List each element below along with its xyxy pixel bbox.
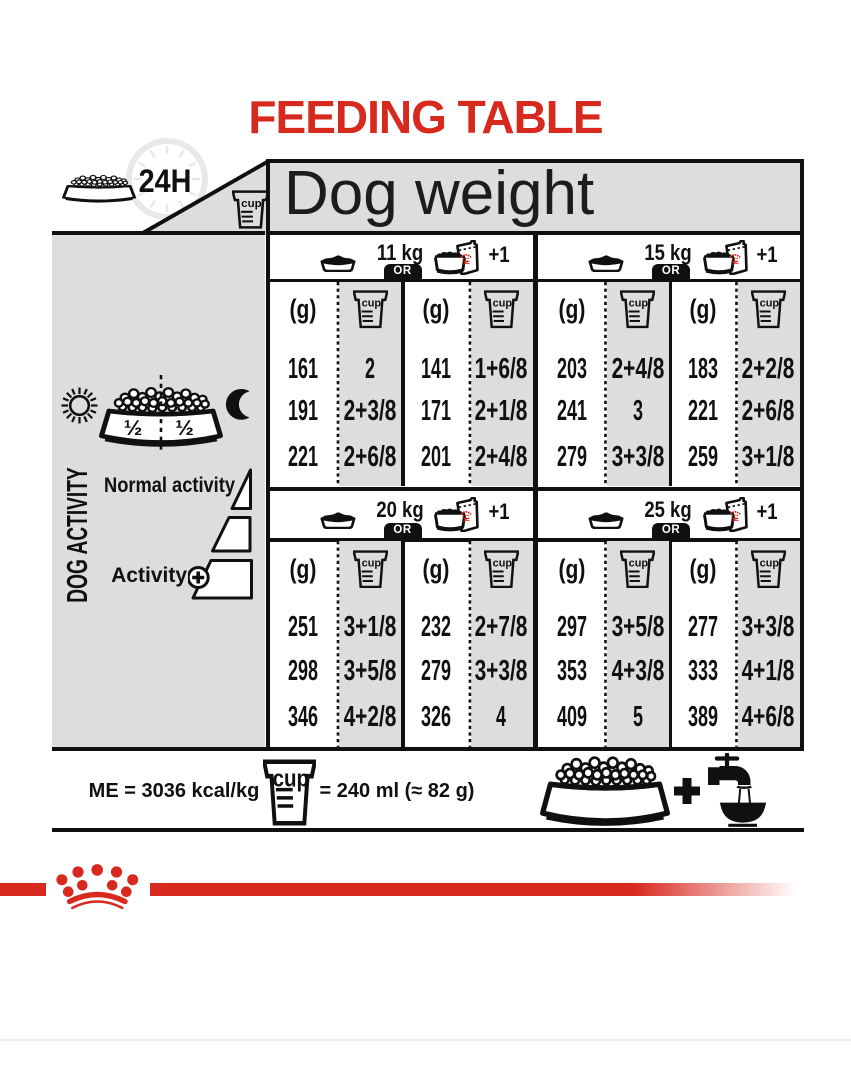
svg-text:cup: cup (759, 557, 779, 569)
svg-text:cup: cup (361, 557, 381, 569)
svg-text:½: ½ (175, 416, 194, 440)
svg-text:cup: cup (759, 298, 779, 310)
svg-text:cup: cup (629, 557, 649, 569)
svg-text:cup: cup (361, 298, 381, 310)
svg-text:cup: cup (241, 198, 262, 210)
svg-text:cup: cup (493, 298, 513, 310)
svg-text:½: ½ (124, 416, 143, 440)
svg-text:cup: cup (629, 298, 649, 310)
svg-text:cup: cup (493, 557, 513, 569)
